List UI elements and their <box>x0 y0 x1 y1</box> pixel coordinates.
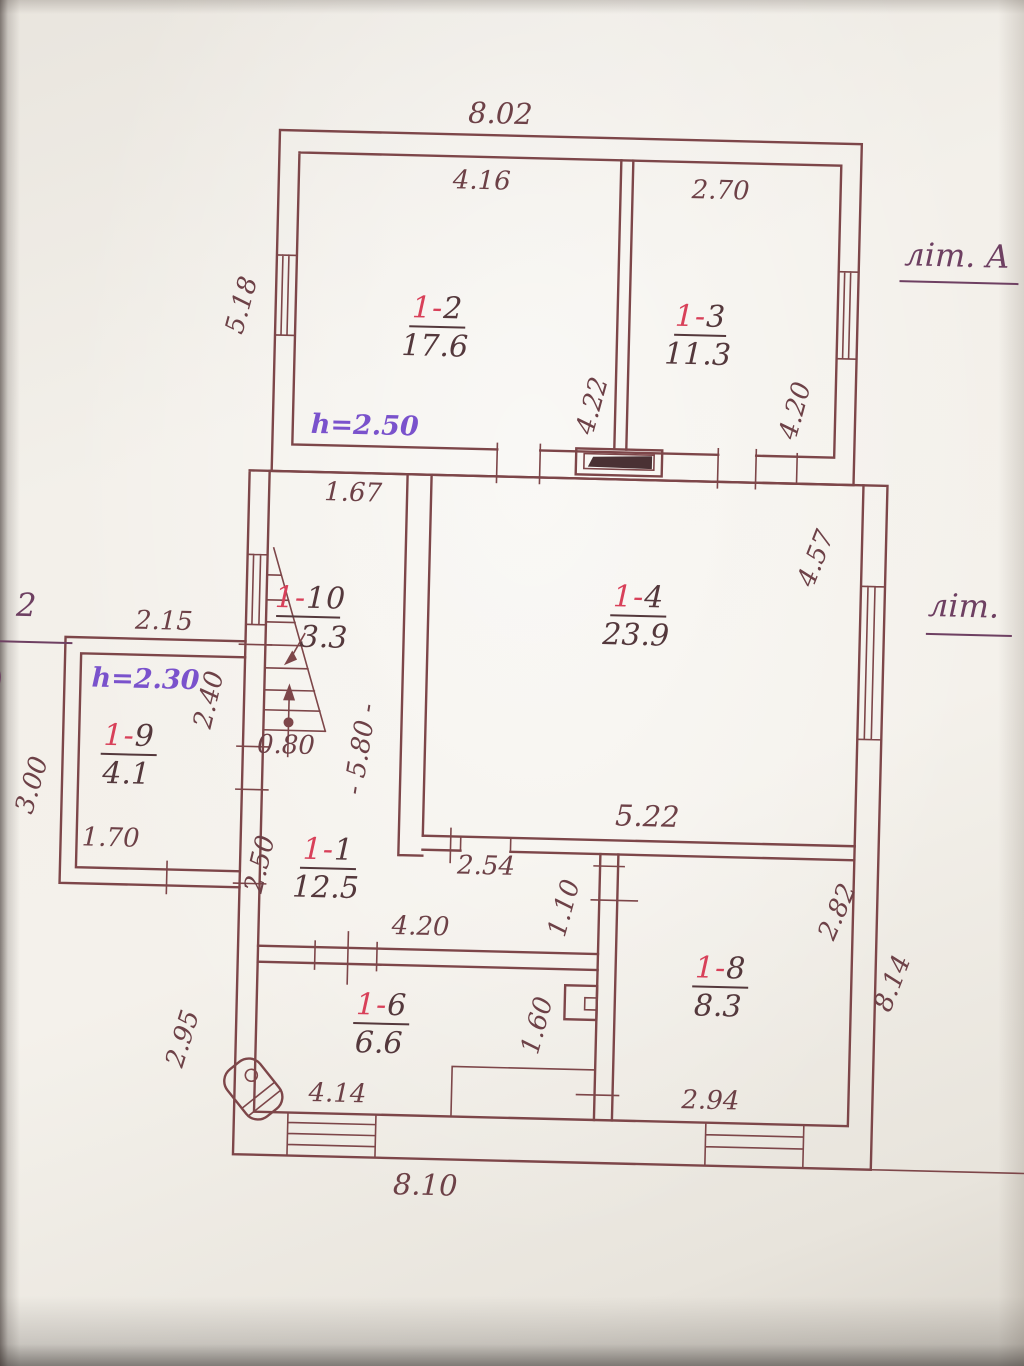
door-jambs-1-8 <box>577 866 639 1096</box>
dim-window-left-bottom: 4.14 <box>307 1078 367 1109</box>
note-ceiling-height-main: h=2.50 <box>310 409 419 443</box>
dim-room-1-3-width: 2.70 <box>690 175 750 206</box>
dim-partition-1-6: 4.20 <box>390 911 450 942</box>
room-1-10-area: 3.3 <box>299 620 348 656</box>
note-ceiling-height-annex: h=2.30 <box>91 663 200 697</box>
lower-block-walls <box>227 470 888 1170</box>
dim-passage: 2.54 <box>456 851 516 882</box>
dim-left-lower: 2.95 <box>160 1007 206 1072</box>
room-1-9-number: 1-9 <box>103 718 155 754</box>
dim-window-right-bottom: 2.94 <box>680 1085 740 1116</box>
room-1-9-area: 4.1 <box>101 756 151 792</box>
dim-stair-width: 0.80 <box>257 730 316 761</box>
dim-hall-top: 1.67 <box>324 477 383 508</box>
partition-1-1-1-6 <box>258 946 598 970</box>
partition-hall-1-4 <box>398 474 431 855</box>
building-letter-partial: літ. <box>928 586 1000 626</box>
dim-door-1-8: 1.10 <box>542 876 586 940</box>
dim-room-1-4-width: 5.22 <box>615 798 680 834</box>
dim-room-1-2-depth: 4.22 <box>570 374 615 439</box>
room-1-2-number: 1-2 <box>412 290 464 326</box>
dim-annex-door: 1.70 <box>81 822 140 853</box>
room-1-8-area: 8.3 <box>693 988 742 1024</box>
dim-annex-side: 3.00 <box>10 753 55 817</box>
dim-door-1-6: 1.60 <box>515 994 559 1058</box>
dimension-labels: 8.02 4.16 2.70 5.18 4.22 4.20 1.67 4.57 … <box>0 85 938 1214</box>
room-1-3-area: 11.3 <box>664 336 732 373</box>
window-left-wall <box>246 554 268 624</box>
flue-symbol <box>564 985 597 1020</box>
door-jambs-1-6 <box>314 931 377 984</box>
dim-room-1-8-side: 2.82 <box>812 879 863 945</box>
room-1-2-area: 17.6 <box>401 328 469 365</box>
room-1-4-area: 23.9 <box>601 617 670 654</box>
edge-text-fragment: 2 <box>15 586 37 625</box>
floor-plan-drawing: 8.02 4.16 2.70 5.18 4.22 4.20 1.67 4.57 … <box>0 0 1024 1366</box>
room-1-10-number: 1-10 <box>274 580 346 617</box>
edge-fragment-partial-glyph <box>0 661 1 691</box>
window-room-1-3 <box>837 272 859 359</box>
interior-partitions <box>254 471 863 1126</box>
dim-room-1-3-depth: 4.20 <box>773 379 818 444</box>
upper-windows <box>275 255 859 359</box>
room-1-1-area: 12.5 <box>292 870 360 907</box>
dim-bottom-overall: 8.10 <box>393 1167 458 1203</box>
dim-left-upper: 5.18 <box>220 273 264 337</box>
scanned-floor-plan-photo: 8.02 4.16 2.70 5.18 4.22 4.20 1.67 4.57 … <box>0 0 1024 1366</box>
room-1-6-number: 1-6 <box>356 987 408 1023</box>
window-bottom-left <box>287 1112 376 1157</box>
room-1-3-number: 1-3 <box>674 299 726 335</box>
building-letter-a: літ. А <box>904 235 1010 276</box>
room-1-6-area: 6.6 <box>354 1025 403 1061</box>
dim-right-upper: 4.57 <box>791 526 841 592</box>
dim-room-1-2-width: 4.16 <box>452 165 512 196</box>
room-1-4-number: 1-4 <box>613 579 665 615</box>
dim-hall-length: - 5.80 - <box>339 701 384 797</box>
dim-top-overall: 8.02 <box>468 96 533 132</box>
partition-1-2-1-3 <box>614 160 633 449</box>
alcove-lines <box>451 1066 595 1119</box>
room-1-1-number: 1-1 <box>302 832 354 868</box>
window-room-1-2 <box>275 255 297 335</box>
height-notes: h=2.50 h=2.30 <box>91 404 419 702</box>
adjacent-sheet-line <box>871 1170 1024 1175</box>
window-bottom-right <box>705 1123 804 1168</box>
toilet-fixture <box>218 1052 288 1125</box>
room-1-8-number: 1-8 <box>695 950 747 986</box>
annex-door-jamb <box>166 861 167 893</box>
dim-hall-lower: 2.50 <box>239 832 282 896</box>
dim-annex-width: 2.15 <box>134 606 194 637</box>
letter-marks: літ. А літ. 2 <box>0 213 1022 716</box>
